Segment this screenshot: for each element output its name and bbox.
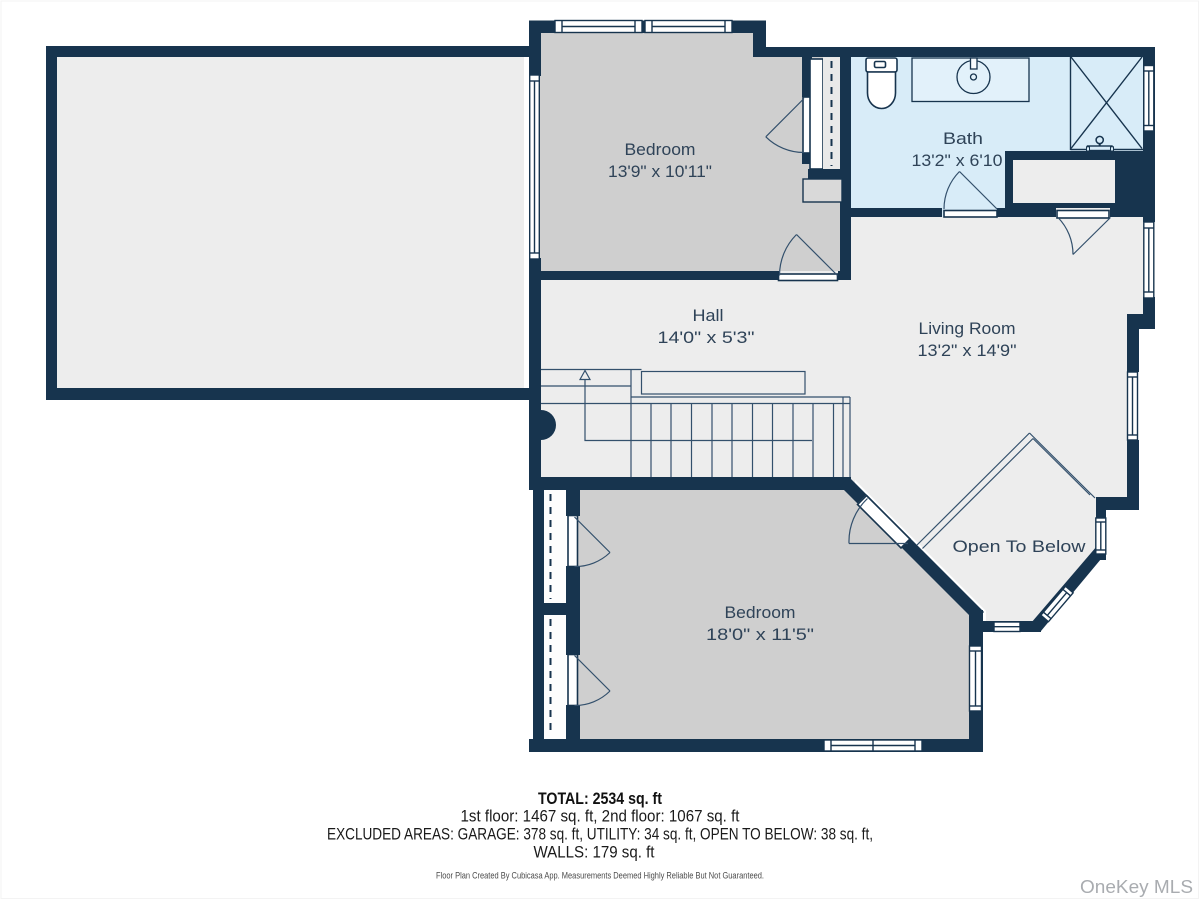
svg-text:14'0" x 5'3": 14'0" x 5'3": [658, 329, 755, 347]
svg-text:18'0" x 11'5": 18'0" x 11'5": [706, 626, 814, 644]
svg-text:13'2" x 6'10: 13'2" x 6'10: [912, 152, 1003, 170]
svg-text:1st floor: 1467 sq. ft, 2nd fl: 1st floor: 1467 sq. ft, 2nd floor: 1067 …: [461, 808, 740, 826]
svg-text:Living Room: Living Room: [919, 320, 1016, 338]
svg-text:WALLS: 179 sq. ft: WALLS: 179 sq. ft: [534, 844, 655, 862]
svg-text:Open To Below: Open To Below: [953, 538, 1086, 556]
svg-text:OneKey MLS: OneKey MLS: [1080, 876, 1193, 897]
svg-text:Bedroom: Bedroom: [725, 604, 796, 622]
svg-text:Bath: Bath: [943, 130, 983, 148]
svg-text:TOTAL: 2534 sq. ft: TOTAL: 2534 sq. ft: [538, 790, 662, 808]
svg-text:Floor Plan Created By Cubicasa: Floor Plan Created By Cubicasa App. Meas…: [436, 871, 764, 881]
svg-text:13'9" x 10'11": 13'9" x 10'11": [608, 163, 712, 181]
svg-text:Bedroom: Bedroom: [625, 141, 696, 159]
svg-text:EXCLUDED AREAS: GARAGE: 378 sq: EXCLUDED AREAS: GARAGE: 378 sq. ft, UTIL…: [327, 826, 873, 844]
svg-text:Hall: Hall: [693, 307, 724, 325]
svg-text:13'2" x 14'9": 13'2" x 14'9": [918, 342, 1017, 360]
